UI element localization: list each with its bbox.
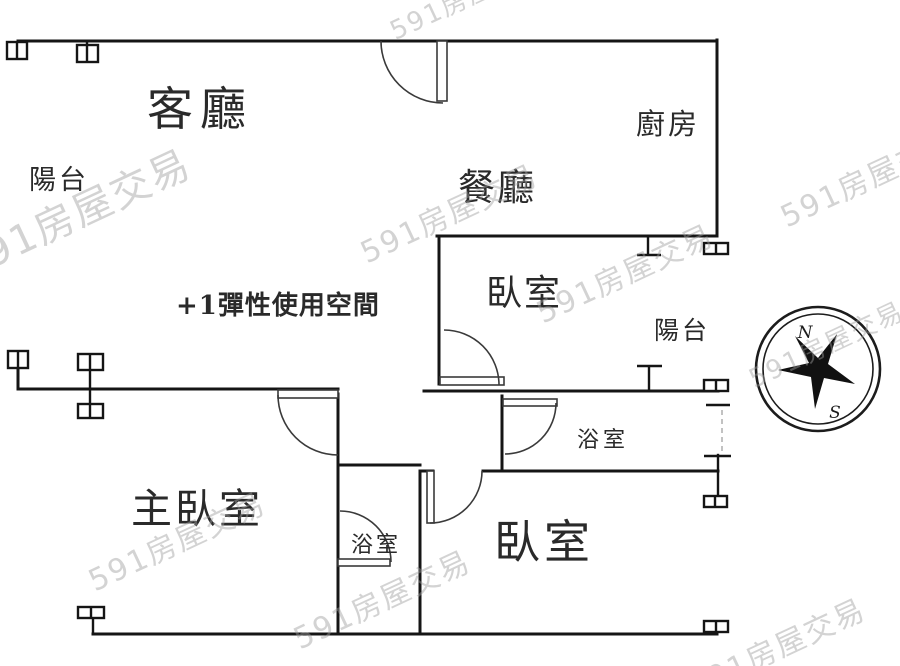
room-label-master-bedroom: 主臥室 [131,489,263,530]
compass: N S [756,307,880,431]
railing-post-icon [637,366,662,391]
room-label-bedroom2: 臥室 [494,519,594,565]
room-label-balcony-right: 陽台 [654,318,710,343]
window-icon [704,621,728,632]
bedroom2-door [427,471,482,523]
floor-plan-drawing: N S [0,0,900,666]
door-leaf [338,559,390,566]
window-icon [7,42,27,59]
floor-plan: N S 客廳 陽台 餐廳 廚房 臥室 +1彈性使用空間 陽台 浴室 主臥室 浴室… [0,0,900,666]
door-leaf [503,399,557,406]
room-label-kitchen: 廚房 [636,110,700,139]
room-label-bath-lower: 浴室 [351,535,401,557]
door-leaf [440,377,504,385]
plus-room-door [440,330,504,385]
door-leaf [437,41,447,101]
window-icon [8,351,28,368]
door-leaf [278,390,338,398]
entrance-door [381,41,447,103]
compass-needle-icon [778,334,855,409]
compass-north-label: N [797,323,814,343]
room-label-living: 客廳 [147,86,253,132]
door-arc [278,395,338,455]
railing-post-icon [637,236,661,255]
window-icon [77,41,98,62]
room-label-dining: 餐廳 [458,169,536,206]
bath-upper-door [503,399,557,454]
door-leaf [427,471,434,523]
room-label-flex-space: +1彈性使用空間 [176,293,380,319]
compass-south-label: S [829,403,841,423]
room-label-bath-upper: 浴室 [577,430,629,452]
door-arc [505,403,556,454]
window-icon [78,607,104,633]
master-bedroom-door [278,390,338,455]
window-icon [704,496,727,507]
room-label-bedroom-plus: 臥室 [486,276,562,312]
pillar-window-icon [78,354,103,418]
window-icon [704,243,728,254]
door-arc [381,41,443,103]
room-label-balcony-left: 陽台 [29,167,89,194]
door-arc [430,471,482,523]
